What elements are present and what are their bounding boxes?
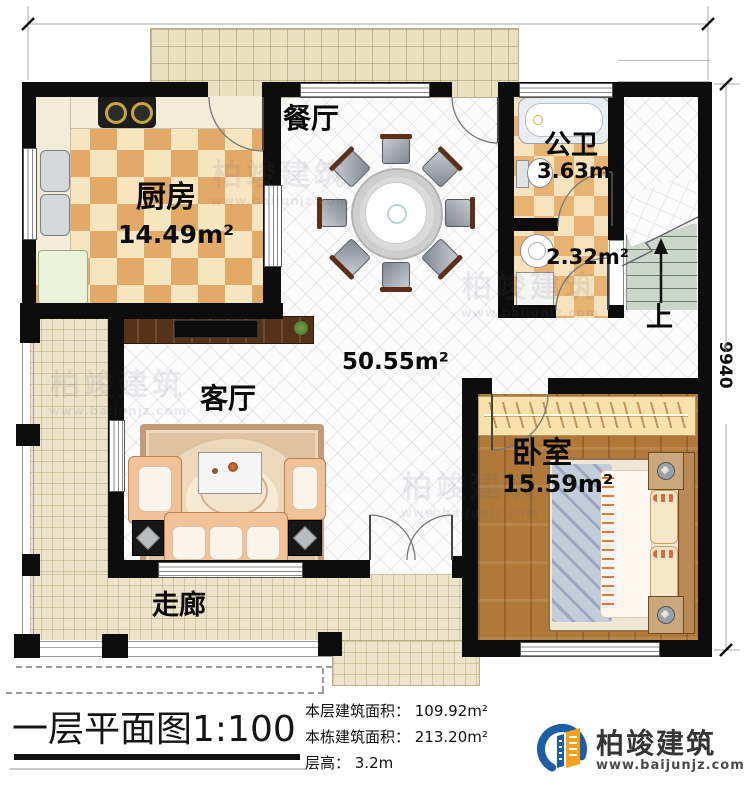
room-area-bedroom: 15.59m² bbox=[502, 472, 613, 497]
floor-plan-canvas: 11940 9940 bbox=[0, 0, 750, 793]
room-label-corridor: 走廊 bbox=[152, 592, 206, 620]
room-area-laundry: 2.32m² bbox=[546, 246, 629, 268]
company-logo-name: 柏竣建筑 bbox=[596, 722, 716, 762]
company-logo-website: www.baijunjz.com bbox=[596, 758, 745, 773]
room-area-open: 50.55m² bbox=[342, 350, 449, 374]
dimension-ticks bbox=[22, 18, 732, 656]
stat-building-area: 本栋建筑面积： 213.20m² bbox=[305, 726, 488, 747]
room-label-bath: 公卫 bbox=[544, 132, 598, 160]
room-area-bath: 3.63m² bbox=[537, 160, 620, 182]
room-label-dining: 餐厅 bbox=[283, 104, 339, 133]
room-label-bedroom: 卧室 bbox=[512, 438, 572, 470]
stair-up-label: 上 bbox=[646, 304, 673, 332]
plan-title-text: 一层平面图 bbox=[12, 709, 192, 750]
stair-arrow-head bbox=[654, 238, 668, 254]
stat-floor-area: 本层建筑面积： 109.92m² bbox=[305, 700, 488, 721]
room-label-kitchen: 厨房 bbox=[136, 182, 196, 214]
plan-overlay bbox=[0, 0, 750, 793]
stats-block: 本层建筑面积： 109.92m² 本栋建筑面积： 213.20m² 层高： 3.… bbox=[305, 700, 488, 778]
plan-title: 一层平面图1:100 bbox=[12, 700, 296, 752]
title-underline bbox=[14, 754, 300, 760]
room-label-living: 客厅 bbox=[200, 384, 256, 413]
company-logo-icon bbox=[536, 716, 592, 778]
room-area-kitchen: 14.49m² bbox=[118, 222, 234, 248]
stat-floor-height: 层高： 3.2m bbox=[305, 752, 488, 773]
title-underline-thin bbox=[10, 768, 306, 770]
plan-scale: 1:100 bbox=[192, 709, 296, 750]
